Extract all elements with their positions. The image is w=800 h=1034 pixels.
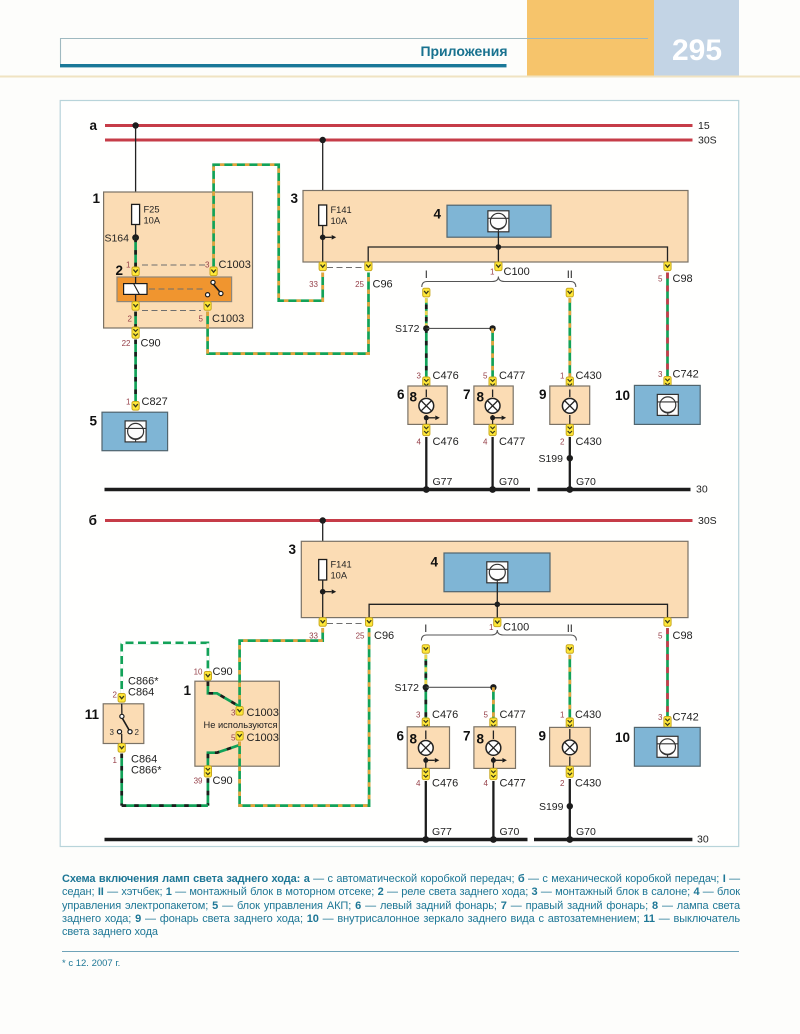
- svg-text:30: 30: [697, 834, 709, 846]
- svg-text:G77: G77: [432, 826, 452, 838]
- svg-text:5: 5: [199, 315, 204, 324]
- svg-text:C430: C430: [576, 436, 602, 448]
- svg-text:4: 4: [417, 438, 422, 447]
- svg-text:3: 3: [658, 713, 663, 722]
- svg-text:C742: C742: [673, 712, 699, 724]
- svg-text:3: 3: [231, 709, 236, 718]
- svg-text:а: а: [89, 118, 97, 133]
- svg-text:C90: C90: [141, 338, 161, 350]
- svg-text:1: 1: [126, 398, 131, 407]
- svg-text:3: 3: [110, 728, 115, 737]
- svg-text:4: 4: [433, 207, 441, 222]
- svg-text:1: 1: [113, 756, 118, 765]
- svg-text:2: 2: [115, 263, 123, 278]
- svg-text:C1003: C1003: [212, 313, 244, 325]
- svg-text:9: 9: [538, 729, 546, 744]
- svg-text:25: 25: [355, 280, 364, 289]
- svg-text:33: 33: [309, 280, 318, 289]
- svg-text:C1003: C1003: [247, 732, 279, 744]
- svg-text:5: 5: [658, 275, 663, 284]
- svg-text:10A: 10A: [331, 216, 348, 226]
- svg-text:Приложения: Приложения: [420, 43, 507, 59]
- svg-text:5: 5: [231, 734, 236, 743]
- svg-text:C477: C477: [500, 778, 526, 790]
- svg-text:2: 2: [135, 728, 140, 737]
- svg-text:C90: C90: [213, 775, 233, 787]
- svg-text:1: 1: [560, 711, 565, 720]
- svg-text:7: 7: [463, 387, 471, 402]
- svg-text:C477: C477: [500, 709, 526, 721]
- svg-text:3: 3: [288, 542, 296, 557]
- svg-text:C100: C100: [504, 266, 530, 278]
- svg-text:25: 25: [356, 632, 365, 641]
- svg-text:C742: C742: [673, 369, 699, 381]
- svg-text:10: 10: [615, 388, 630, 403]
- svg-text:C476: C476: [433, 436, 459, 448]
- svg-text:39: 39: [194, 777, 203, 786]
- svg-text:б: б: [89, 513, 97, 528]
- svg-text:5: 5: [658, 632, 663, 641]
- svg-text:15: 15: [698, 120, 710, 132]
- svg-text:G70: G70: [576, 826, 596, 838]
- svg-text:6: 6: [396, 729, 404, 744]
- svg-text:C864: C864: [128, 687, 154, 699]
- svg-text:30: 30: [696, 484, 708, 496]
- svg-text:1: 1: [489, 623, 494, 632]
- svg-text:4: 4: [484, 779, 489, 788]
- svg-text:4: 4: [483, 438, 488, 447]
- svg-text:1: 1: [183, 683, 191, 698]
- svg-text:C476: C476: [432, 709, 458, 721]
- svg-text:C827: C827: [142, 396, 168, 408]
- svg-text:5: 5: [484, 711, 489, 720]
- svg-text:10: 10: [615, 730, 630, 745]
- svg-text:1: 1: [92, 191, 100, 206]
- svg-text:3: 3: [205, 261, 210, 270]
- svg-text:10A: 10A: [144, 216, 161, 226]
- svg-text:C98: C98: [673, 630, 693, 642]
- svg-text:7: 7: [463, 729, 471, 744]
- svg-text:II: II: [567, 269, 573, 281]
- svg-text:10: 10: [194, 668, 203, 677]
- svg-text:S164: S164: [104, 233, 129, 245]
- svg-text:11: 11: [85, 707, 100, 722]
- svg-text:2: 2: [560, 438, 565, 447]
- svg-text:22: 22: [122, 339, 131, 348]
- svg-text:F141: F141: [331, 560, 352, 570]
- svg-text:S172: S172: [394, 682, 419, 694]
- svg-text:1: 1: [490, 268, 495, 277]
- svg-text:C96: C96: [373, 279, 393, 291]
- svg-text:I: I: [424, 623, 427, 635]
- svg-text:C866*: C866*: [131, 765, 162, 777]
- svg-text:9: 9: [539, 387, 547, 402]
- svg-text:C98: C98: [673, 273, 693, 285]
- svg-text:F25: F25: [144, 205, 160, 215]
- svg-text:C96: C96: [374, 630, 394, 642]
- svg-text:C90: C90: [213, 666, 233, 678]
- svg-text:3: 3: [417, 372, 422, 381]
- svg-text:G70: G70: [499, 476, 519, 488]
- svg-text:30S: 30S: [698, 135, 717, 147]
- svg-text:33: 33: [309, 632, 318, 641]
- svg-text:C430: C430: [575, 709, 601, 721]
- svg-text:295: 295: [672, 34, 722, 67]
- svg-text:G70: G70: [500, 826, 520, 838]
- svg-text:C1003: C1003: [247, 707, 279, 719]
- svg-text:2: 2: [113, 691, 118, 700]
- svg-text:S199: S199: [539, 801, 564, 813]
- svg-text:C477: C477: [499, 370, 525, 382]
- svg-text:4: 4: [416, 779, 421, 788]
- svg-text:II: II: [567, 623, 573, 635]
- svg-text:3: 3: [290, 191, 298, 206]
- svg-text:2: 2: [560, 779, 565, 788]
- svg-text:10A: 10A: [331, 571, 348, 581]
- svg-text:I: I: [425, 269, 428, 281]
- svg-text:C430: C430: [575, 778, 601, 790]
- svg-text:8: 8: [410, 390, 418, 405]
- svg-text:8: 8: [477, 732, 485, 747]
- svg-text:8: 8: [477, 390, 485, 405]
- svg-text:1: 1: [560, 372, 565, 381]
- svg-text:C100: C100: [503, 622, 529, 634]
- svg-text:4: 4: [430, 555, 438, 570]
- svg-text:C477: C477: [499, 436, 525, 448]
- svg-text:S172: S172: [395, 323, 420, 335]
- svg-text:G77: G77: [433, 476, 453, 488]
- svg-text:6: 6: [397, 387, 405, 402]
- svg-text:S199: S199: [538, 453, 563, 465]
- svg-text:3: 3: [416, 711, 421, 720]
- svg-text:C1003: C1003: [219, 259, 251, 271]
- svg-text:2: 2: [128, 315, 133, 324]
- svg-text:F141: F141: [331, 205, 352, 215]
- svg-text:30S: 30S: [698, 515, 717, 527]
- svg-text:3: 3: [658, 370, 663, 379]
- svg-text:8: 8: [410, 732, 418, 747]
- svg-text:5: 5: [89, 414, 97, 429]
- svg-text:5: 5: [483, 372, 488, 381]
- svg-text:C476: C476: [432, 778, 458, 790]
- svg-text:C476: C476: [433, 370, 459, 382]
- svg-text:G70: G70: [576, 476, 596, 488]
- svg-text:1: 1: [126, 261, 131, 270]
- svg-text:C430: C430: [576, 370, 602, 382]
- svg-text:Не используются: Не используются: [204, 720, 278, 730]
